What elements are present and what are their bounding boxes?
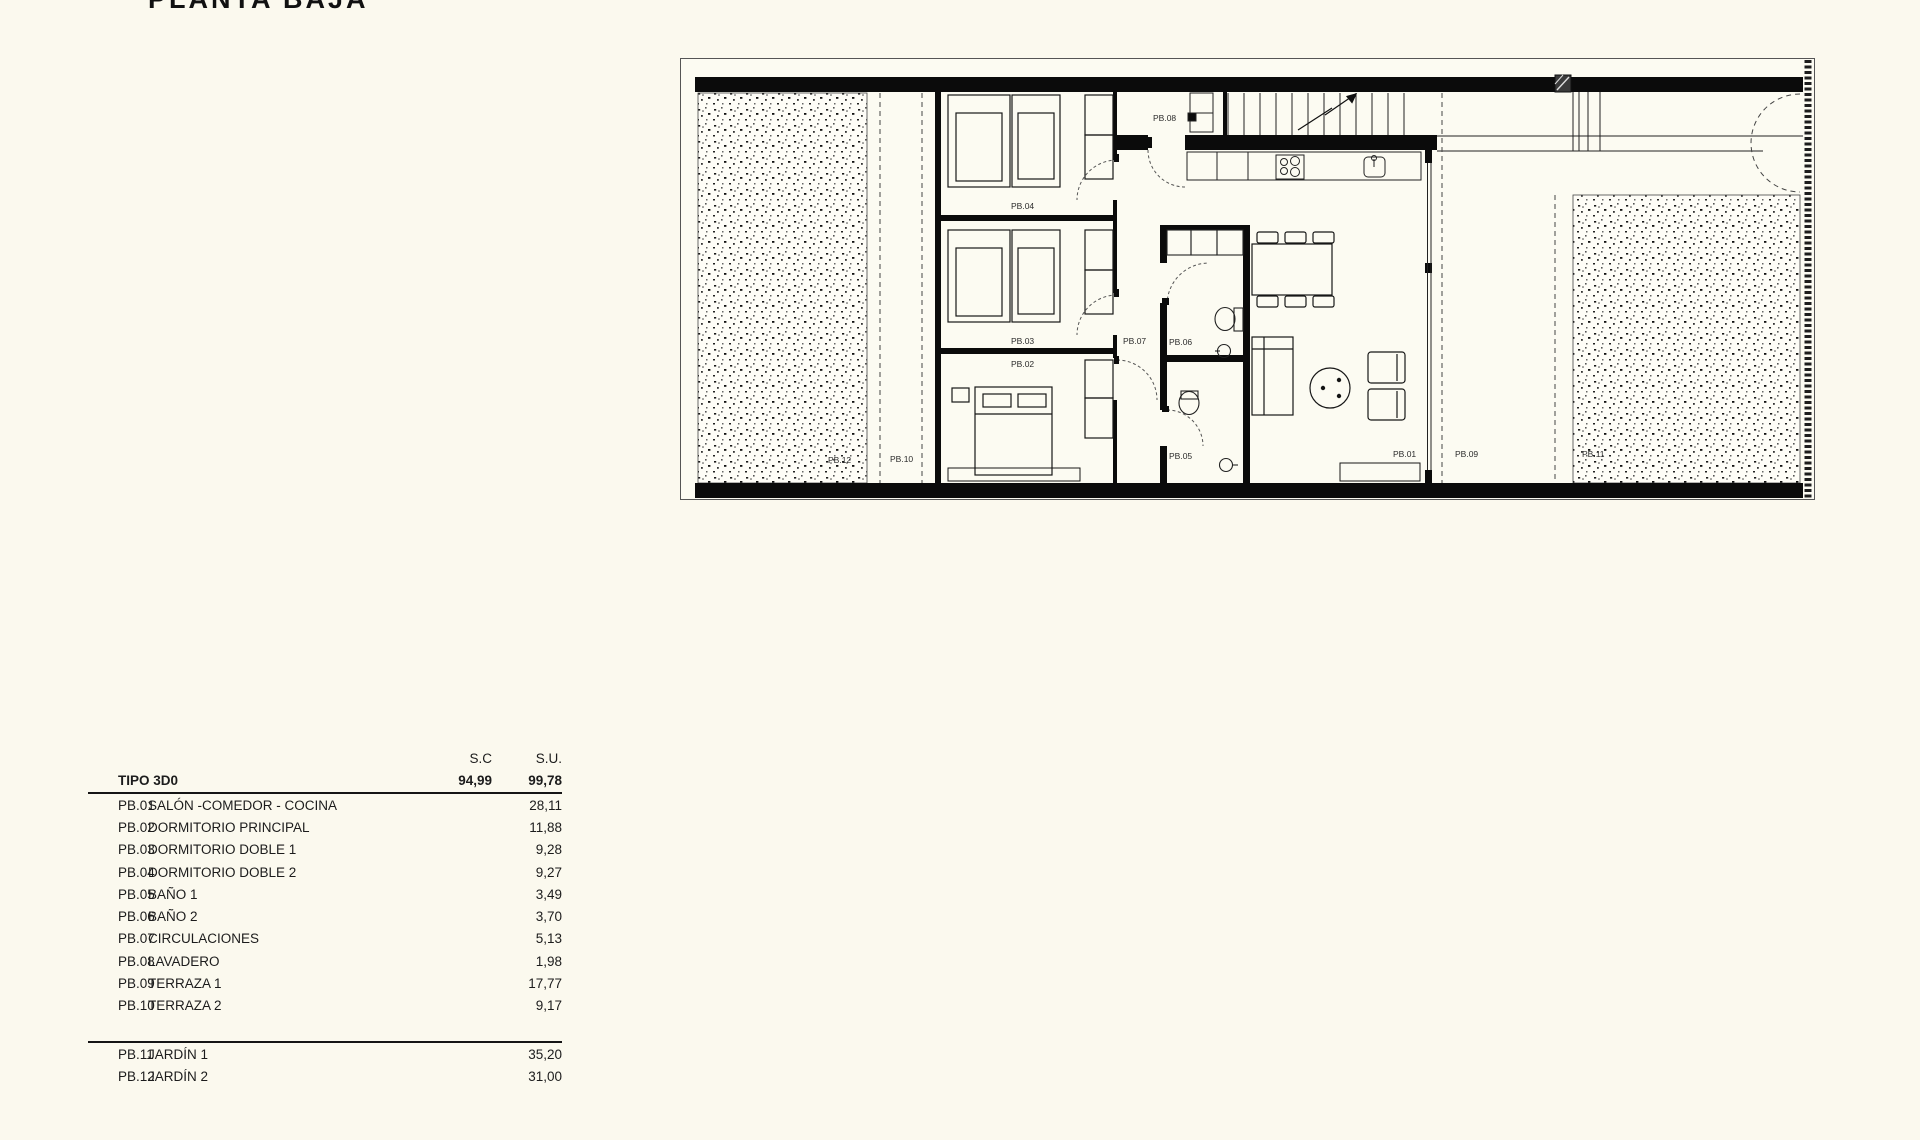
room-code: PB.12 — [88, 1069, 148, 1084]
room-su: 17,77 — [492, 976, 562, 991]
room-label-pb09: PB.09 — [1455, 449, 1478, 459]
room-su: 31,00 — [492, 1069, 562, 1084]
table-row: PB.11 JARDÍN 1 35,20 — [88, 1043, 562, 1065]
room-label-pb04: PB.04 — [1011, 201, 1034, 211]
room-name: TERRAZA 1 — [148, 976, 398, 991]
room-label-pb03: PB.03 — [1011, 336, 1034, 346]
room-label-pb08: PB.08 — [1153, 113, 1176, 123]
porch-column — [1555, 75, 1571, 92]
table-row: PB.06 BAÑO 2 3,70 — [88, 905, 562, 927]
room-label-pb07: PB.07 — [1123, 336, 1146, 346]
garden-1-area — [1573, 195, 1800, 483]
room-su: 11,88 — [492, 820, 562, 835]
room-name: DORMITORIO DOBLE 1 — [148, 842, 398, 857]
room-name: DORMITORIO PRINCIPAL — [148, 820, 398, 835]
room-label-pb01: PB.01 — [1393, 449, 1416, 459]
table-row: PB.10 TERRAZA 2 9,17 — [88, 995, 562, 1017]
room-name: DORMITORIO DOBLE 2 — [148, 865, 398, 880]
room-label-pb02: PB.02 — [1011, 359, 1034, 369]
room-su: 9,28 — [492, 842, 562, 857]
room-code: PB.10 — [88, 998, 148, 1013]
room-name: JARDÍN 2 — [148, 1069, 398, 1084]
type-label: TIPO 3D0 — [88, 773, 398, 788]
room-su: 3,49 — [492, 887, 562, 902]
room-name: BAÑO 1 — [148, 887, 398, 902]
room-name: CIRCULACIONES — [148, 931, 398, 946]
room-name: TERRAZA 2 — [148, 998, 398, 1013]
drawing-sheet: { "title": "PLANTA BAJA", "colors": { "p… — [0, 0, 1920, 1140]
room-name: SALÓN -COMEDOR - COCINA — [148, 798, 398, 813]
room-su: 5,13 — [492, 931, 562, 946]
table-row: PB.09 TERRAZA 1 17,77 — [88, 972, 562, 994]
table-row: PB.03 DORMITORIO DOBLE 1 9,28 — [88, 839, 562, 861]
table-row: PB.02 DORMITORIO PRINCIPAL 11,88 — [88, 816, 562, 838]
room-label-pb05: PB.05 — [1169, 451, 1192, 461]
sheet-title: PLANTA BAJA — [148, 0, 369, 15]
room-name: BAÑO 2 — [148, 909, 398, 924]
room-label-pb10: PB.10 — [890, 454, 913, 464]
room-code: PB.11 — [88, 1047, 148, 1062]
room-code: PB.06 — [88, 909, 148, 924]
room-su: 9,17 — [492, 998, 562, 1013]
garden-2-area — [698, 93, 867, 483]
area-table: S.C S.U. TIPO 3D0 94,99 99,78 PB.01 SALÓ… — [88, 748, 562, 1088]
table-row: PB.08 LAVADERO 1,98 — [88, 950, 562, 972]
table-row: PB.12 JARDÍN 2 31,00 — [88, 1065, 562, 1087]
room-su: 1,98 — [492, 954, 562, 969]
type-total-row: TIPO 3D0 94,99 99,78 — [88, 768, 562, 794]
room-code: PB.02 — [88, 820, 148, 835]
room-su: 28,11 — [492, 798, 562, 813]
table-row: PB.07 CIRCULACIONES 5,13 — [88, 928, 562, 950]
type-sc-value: 94,99 — [398, 773, 492, 788]
table-header-row: S.C S.U. — [88, 748, 562, 768]
room-code: PB.09 — [88, 976, 148, 991]
room-code: PB.08 — [88, 954, 148, 969]
table-row: PB.04 DORMITORIO DOBLE 2 9,27 — [88, 861, 562, 883]
column-header-sc: S.C — [398, 751, 492, 766]
floor-plan: PB.12 PB.10 PB.04 PB.03 PB.02 PB.07 PB.0… — [680, 58, 1815, 500]
room-su: 3,70 — [492, 909, 562, 924]
table-row: PB.01 SALÓN -COMEDOR - COCINA 28,11 — [88, 794, 562, 816]
room-label-pb12: PB.12 — [828, 455, 851, 465]
room-su: 35,20 — [492, 1047, 562, 1062]
room-su: 9,27 — [492, 865, 562, 880]
room-name: JARDÍN 1 — [148, 1047, 398, 1062]
type-su-value: 99,78 — [492, 773, 562, 788]
room-code: PB.04 — [88, 865, 148, 880]
room-code: PB.07 — [88, 931, 148, 946]
room-label-pb06: PB.06 — [1169, 337, 1192, 347]
column-header-su: S.U. — [492, 751, 562, 766]
room-code: PB.01 — [88, 798, 148, 813]
table-row: PB.05 BAÑO 1 3,49 — [88, 883, 562, 905]
room-label-pb11: PB.11 — [1582, 449, 1605, 459]
room-code: PB.03 — [88, 842, 148, 857]
room-code: PB.05 — [88, 887, 148, 902]
room-name: LAVADERO — [148, 954, 398, 969]
